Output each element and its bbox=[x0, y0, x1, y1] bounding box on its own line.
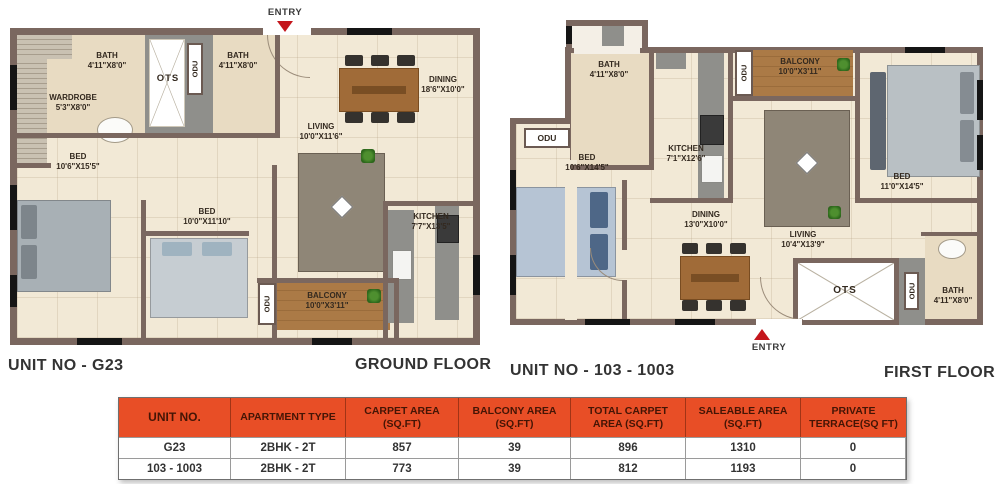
window-marker bbox=[10, 275, 17, 307]
room-dim: 10'0"X3'11" bbox=[289, 301, 365, 311]
window-marker bbox=[312, 338, 352, 345]
chair bbox=[706, 300, 722, 311]
wall bbox=[141, 200, 146, 338]
wall bbox=[855, 53, 860, 200]
room-name: OTS bbox=[143, 73, 193, 85]
room-label-kitchen: KITCHEN 7'1"X12'6" bbox=[660, 144, 712, 165]
odu-label: ODU bbox=[740, 65, 749, 82]
odu-unit: ODU bbox=[735, 50, 753, 96]
first-entry-label: ENTRY bbox=[746, 342, 792, 353]
wall bbox=[383, 201, 473, 206]
table-cell: 103 - 1003 bbox=[119, 458, 231, 479]
plant-icon bbox=[837, 58, 850, 71]
wall bbox=[921, 232, 983, 236]
table-header-apartment-type: APARTMENT TYPE bbox=[231, 398, 346, 437]
area-table: UNIT NO. APARTMENT TYPE CARPET AREA (SQ.… bbox=[118, 397, 907, 480]
room-name: BATH bbox=[574, 60, 644, 70]
window-marker bbox=[510, 170, 516, 210]
odu-label: ODU bbox=[907, 283, 916, 300]
room-label-dining: DINING 18'6"X10'0" bbox=[415, 75, 471, 96]
room-label-bath-bottom: BATH 4'11"X8'0" bbox=[924, 286, 982, 307]
wall-opening bbox=[565, 160, 577, 320]
first-floor-plan: BATH 4'11"X8'0" ODU BED 10'6"X14'5" KITC… bbox=[510, 20, 985, 327]
room-dim: 4'11"X8'0" bbox=[203, 61, 273, 71]
room-dim: 10'0"X11'6" bbox=[293, 132, 349, 142]
plant-icon bbox=[828, 206, 841, 219]
table-cell: 812 bbox=[571, 458, 686, 479]
odu-unit: ODU bbox=[904, 272, 919, 310]
room-name: BED bbox=[169, 207, 245, 217]
table-cell: 39 bbox=[459, 458, 571, 479]
wall bbox=[728, 53, 733, 200]
plant-icon bbox=[361, 149, 375, 163]
room-dim: 4'11"X8'0" bbox=[574, 70, 644, 80]
rug bbox=[870, 72, 886, 170]
table-cell: 39 bbox=[459, 437, 571, 458]
chair bbox=[397, 112, 415, 123]
pillow bbox=[960, 72, 974, 114]
table-cell: 1310 bbox=[686, 437, 801, 458]
dining-table bbox=[339, 68, 419, 112]
ground-floor-caption: GROUND FLOOR bbox=[355, 356, 491, 374]
window-marker bbox=[566, 26, 572, 44]
room-label-ots: OTS bbox=[815, 284, 875, 297]
chair bbox=[682, 243, 698, 254]
table-cell: G23 bbox=[119, 437, 231, 458]
room-name: BATH bbox=[72, 51, 142, 61]
room-name: WARDROBE bbox=[35, 93, 111, 103]
room-name: BED bbox=[552, 153, 622, 163]
window-marker bbox=[905, 47, 945, 53]
room-label-ots: OTS bbox=[143, 73, 193, 85]
table-cell: 773 bbox=[346, 458, 459, 479]
wall bbox=[145, 231, 249, 236]
kitchen-counter bbox=[656, 53, 686, 69]
wall-opening bbox=[574, 47, 640, 54]
chair bbox=[371, 55, 389, 66]
pillow bbox=[162, 242, 192, 256]
odu-label: ODU bbox=[263, 296, 272, 313]
room-dim: 7'1"X12'6" bbox=[660, 154, 712, 164]
odu-unit: ODU bbox=[524, 128, 570, 148]
pillow bbox=[202, 242, 232, 256]
chair bbox=[682, 300, 698, 311]
room-label-balcony: BALCONY 10'0"X3'11" bbox=[762, 57, 838, 78]
ground-entry-label: ENTRY bbox=[262, 7, 308, 18]
room-label-living: LIVING 10'0"X11'6" bbox=[293, 122, 349, 143]
room-label-bed-left: BED 10'6"X14'5" bbox=[552, 153, 622, 174]
floorplan-sheet: ENTRY WARDROBE 5'3"X8'0" BATH 4'11"X8'0"… bbox=[0, 0, 1000, 484]
room-name: DINING bbox=[676, 210, 736, 220]
table-header-balcony-area: BALCONY AREA (SQ.FT) bbox=[459, 398, 571, 437]
wall bbox=[650, 198, 733, 203]
room-name: BED bbox=[866, 172, 938, 182]
room-label-bed1: BED 10'6"X15'5" bbox=[45, 152, 111, 173]
table-cell: 0 bbox=[801, 437, 906, 458]
room-dim: 13'0"X10'0" bbox=[676, 220, 736, 230]
pillow bbox=[960, 120, 974, 162]
room-dim: 10'6"X15'5" bbox=[45, 162, 111, 172]
ground-floor-plan: WARDROBE 5'3"X8'0" BATH 4'11"X8'0" OTS O… bbox=[10, 28, 480, 345]
wall bbox=[731, 96, 855, 101]
wall bbox=[17, 133, 279, 138]
room-label-bed-right: BED 11'0"X14'5" bbox=[866, 172, 938, 193]
table-cell: 2BHK - 2T bbox=[231, 437, 346, 458]
wall bbox=[383, 201, 388, 338]
room-label-wardrobe: WARDROBE 5'3"X8'0" bbox=[35, 93, 111, 114]
table-cell: 0 bbox=[801, 458, 906, 479]
sofa-set bbox=[298, 153, 385, 272]
shaft-block bbox=[602, 26, 624, 46]
room-name: OTS bbox=[815, 284, 875, 297]
room-label-bath1: BATH 4'11"X8'0" bbox=[72, 51, 142, 72]
bath2-floor bbox=[213, 35, 275, 133]
table-header-saleable-area: SALEABLE AREA (SQ.FT) bbox=[686, 398, 801, 437]
first-floor-caption: FIRST FLOOR bbox=[884, 364, 995, 382]
table-cell: 2BHK - 2T bbox=[231, 458, 346, 479]
table-header-total-carpet-area: TOTAL CARPET AREA (SQ.FT) bbox=[571, 398, 686, 437]
room-dim: 4'11"X8'0" bbox=[924, 296, 982, 306]
room-label-bath2: BATH 4'11"X8'0" bbox=[203, 51, 273, 72]
room-label-dining: DINING 13'0"X10'0" bbox=[676, 210, 736, 231]
room-name: LIVING bbox=[293, 122, 349, 132]
stove-icon bbox=[700, 115, 724, 145]
room-dim: 18'6"X10'0" bbox=[415, 85, 471, 95]
room-name: KITCHEN bbox=[660, 144, 712, 154]
first-entry-arrow-icon bbox=[754, 329, 770, 340]
dining-table bbox=[680, 256, 750, 300]
basin-icon bbox=[938, 239, 966, 259]
room-dim: 4'11"X8'0" bbox=[72, 61, 142, 71]
chair bbox=[730, 300, 746, 311]
pillow bbox=[21, 245, 37, 279]
rug bbox=[97, 117, 133, 143]
sink-icon bbox=[392, 250, 412, 280]
room-label-bath-top: BATH 4'11"X8'0" bbox=[574, 60, 644, 81]
chair bbox=[397, 55, 415, 66]
wall bbox=[257, 278, 399, 283]
table-header-private-terrace: PRIVATE TERRACE(SQ FT) bbox=[801, 398, 906, 437]
table-cell: 896 bbox=[571, 437, 686, 458]
table-cell: 857 bbox=[346, 437, 459, 458]
wall bbox=[394, 278, 399, 338]
wall bbox=[275, 35, 280, 138]
window-marker bbox=[510, 255, 516, 295]
room-dim: 7'7"X13'5" bbox=[405, 222, 457, 232]
room-name: LIVING bbox=[772, 230, 834, 240]
room-dim: 10'0"X3'11" bbox=[762, 67, 838, 77]
ground-entry-arrow-icon bbox=[277, 21, 293, 32]
window-marker bbox=[77, 338, 122, 345]
chair bbox=[730, 243, 746, 254]
first-unit-caption: UNIT NO - 103 - 1003 bbox=[510, 362, 675, 380]
window-marker bbox=[10, 65, 17, 110]
room-name: KITCHEN bbox=[405, 212, 457, 222]
room-label-bed2: BED 10'0"X11'10" bbox=[169, 207, 245, 228]
room-name: BATH bbox=[924, 286, 982, 296]
room-dim: 10'4"X13'9" bbox=[772, 240, 834, 250]
room-name: BALCONY bbox=[762, 57, 838, 67]
table-header-carpet-area: CARPET AREA (SQ.FT) bbox=[346, 398, 459, 437]
odu-unit: ODU bbox=[187, 43, 203, 95]
odu-unit: ODU bbox=[258, 283, 276, 325]
room-label-kitchen: KITCHEN 7'7"X13'5" bbox=[405, 212, 457, 233]
table-cell: 1193 bbox=[686, 458, 801, 479]
chair bbox=[706, 243, 722, 254]
pillow bbox=[21, 205, 37, 239]
room-dim: 10'0"X11'10" bbox=[169, 217, 245, 227]
room-dim: 5'3"X8'0" bbox=[35, 103, 111, 113]
room-name: BALCONY bbox=[289, 291, 365, 301]
window-marker bbox=[473, 255, 480, 295]
plant-icon bbox=[367, 289, 381, 303]
ground-unit-caption: UNIT NO - G23 bbox=[8, 357, 123, 375]
window-marker bbox=[675, 319, 715, 325]
window-marker bbox=[347, 28, 392, 35]
wall bbox=[855, 198, 983, 203]
window-marker bbox=[977, 80, 983, 120]
pillow bbox=[590, 192, 608, 228]
room-label-living: LIVING 10'4"X13'9" bbox=[772, 230, 834, 251]
window-marker bbox=[585, 319, 630, 325]
table-header-unit-no: UNIT NO. bbox=[119, 398, 231, 437]
room-dim: 11'0"X14'5" bbox=[866, 182, 938, 192]
room-name: DINING bbox=[415, 75, 471, 85]
wall bbox=[649, 53, 654, 165]
room-dim: 10'6"X14'5" bbox=[552, 163, 622, 173]
wardrobe-closet bbox=[17, 35, 72, 59]
window-marker bbox=[10, 185, 17, 230]
chair bbox=[371, 112, 389, 123]
room-label-balcony: BALCONY 10'0"X3'11" bbox=[289, 291, 365, 312]
chair bbox=[345, 55, 363, 66]
window-marker bbox=[977, 135, 983, 170]
entry-opening bbox=[756, 319, 802, 325]
odu-label: ODU bbox=[191, 61, 200, 78]
room-name: BED bbox=[45, 152, 111, 162]
room-name: BATH bbox=[203, 51, 273, 61]
wall bbox=[622, 180, 627, 250]
